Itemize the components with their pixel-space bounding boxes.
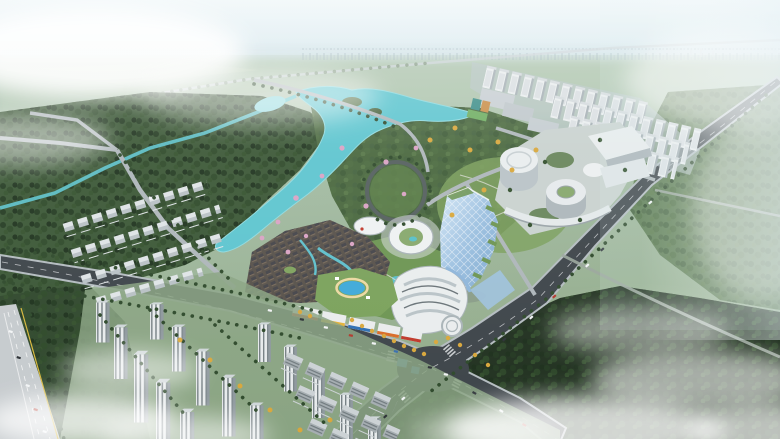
aerial-masterplan-rendering [0,0,780,439]
right-edge-haze [640,0,780,340]
aerial-rendering-stage [0,0,780,439]
